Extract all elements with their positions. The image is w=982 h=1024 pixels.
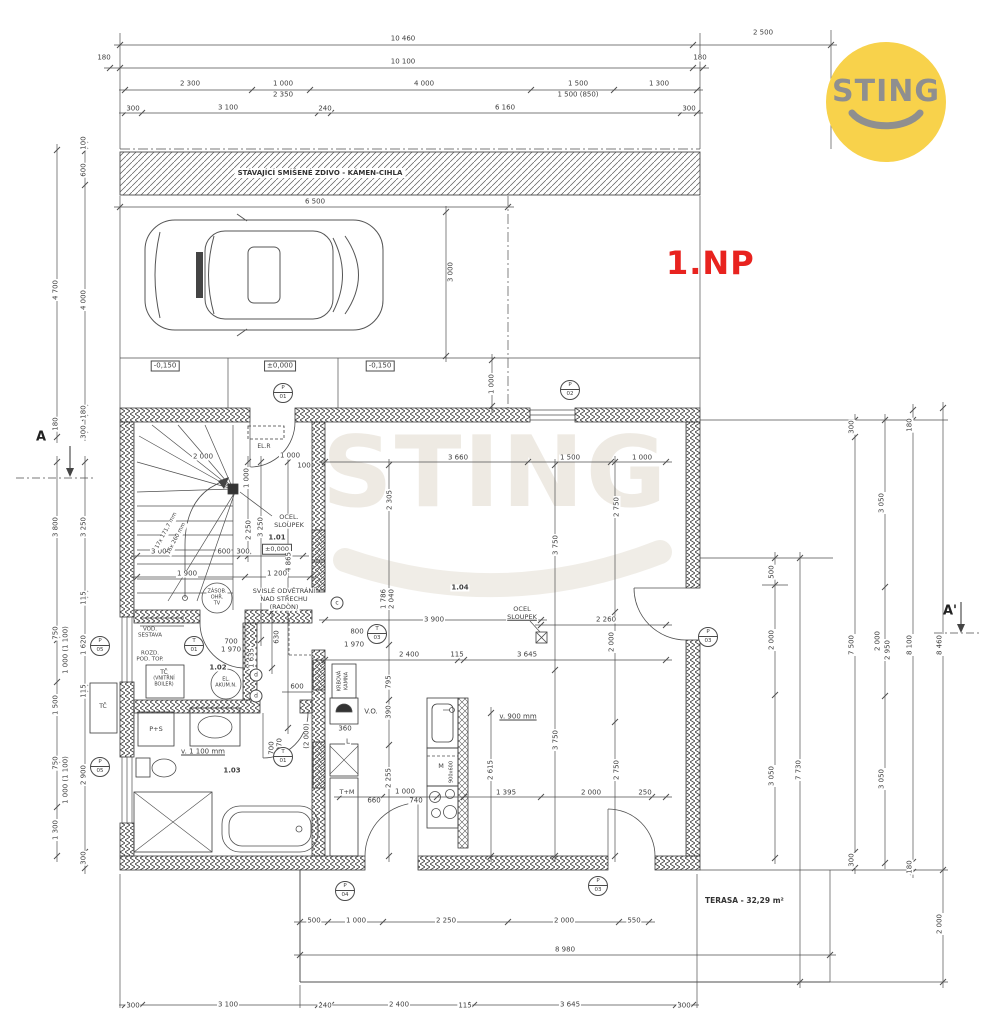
dim-text: 2 500 (752, 30, 774, 37)
dim-text: 3 250 (258, 516, 265, 538)
dim-text: 1.01 (267, 535, 286, 542)
dim-text: 1 970 (220, 647, 242, 654)
dim-text: 4 700 (53, 279, 60, 301)
dim-text: 100 (81, 135, 88, 150)
position-marker: P04 (335, 881, 355, 901)
dim-text: 3 100 (217, 1002, 239, 1009)
dim-text: L (345, 739, 351, 746)
dim-text: 630 (274, 629, 281, 644)
dim-text: 1 500 (53, 694, 60, 716)
dim-text: EL.R (256, 444, 271, 450)
dim-text: 2 615 (488, 759, 495, 781)
position-marker: P05 (90, 636, 110, 656)
dim-text: 1 000 (272, 81, 294, 88)
dim-text: 180 (692, 55, 707, 62)
dim-text: 300 (849, 852, 856, 867)
dim-text: P+S (148, 726, 164, 733)
dim-text: 180 (81, 404, 88, 419)
dim-text: V.O. (363, 709, 379, 716)
dim-text: 1.02 (208, 665, 227, 672)
dim-text: 500 (306, 918, 321, 925)
dim-text: 1 000 (345, 918, 367, 925)
dim-text: 6 160 (494, 105, 516, 112)
dim-text: 3 800 (53, 516, 60, 538)
dim-text: 1 000 (631, 455, 653, 462)
dim-text: 2 400 (388, 1002, 410, 1009)
dim-text: 240 (317, 106, 332, 113)
dim-text: 2 255 (386, 767, 393, 789)
dim-text: 1.04 (450, 585, 469, 592)
dim-text: 115 (449, 652, 464, 659)
dim-text: 1 500 (567, 81, 589, 88)
dim-text: 2 750 (614, 759, 621, 781)
dim-text: 1 635 (249, 647, 256, 669)
dim-text: 115 (457, 1003, 472, 1010)
vent-marker: c (331, 597, 344, 610)
dim-text: 2 000 (580, 790, 602, 797)
position-marker: T01 (273, 747, 293, 767)
dim-text: 300 (125, 106, 140, 113)
dim-text: 800 (349, 629, 364, 636)
dim-text: 300 (81, 424, 88, 439)
dim-text: 795 (386, 674, 393, 689)
dim-text: 2 300 (179, 81, 201, 88)
dim-text: 2 305 (387, 489, 394, 511)
dim-text: AKUM.N. (214, 684, 237, 689)
dim-text: 2 000 (875, 630, 882, 652)
dim-text: 700 (223, 639, 238, 646)
dim-text: 1 200 (266, 571, 288, 578)
dim-text: 2 000 (937, 913, 944, 935)
dim-text: 300 (681, 106, 696, 113)
dim-text: OCEL (512, 606, 531, 613)
dim-text: 900x600 (450, 760, 455, 784)
dim-text: 240 (317, 1003, 332, 1010)
position-marker: T01 (184, 636, 204, 656)
dim-text: 10 100 (390, 59, 417, 66)
vent-marker: d (250, 690, 263, 703)
section-marker-a-prime: A' (943, 604, 957, 619)
dim-text: 1 000 (279, 453, 301, 460)
dim-text: 2 250 (435, 918, 457, 925)
dim-text: 3 900 (423, 617, 445, 624)
dim-text: 390 (386, 704, 393, 719)
dim-text: 300 (235, 549, 250, 556)
existing-wall-label: STÁVAJÍCÍ SMÍŠENÉ ZDIVO - KÁMEN-CIHLA (235, 168, 406, 178)
dim-text: 750 (53, 625, 60, 640)
floor-title: 1.NP (666, 244, 755, 282)
terrace-area-label: TERASA - 32,29 m² (705, 896, 784, 905)
dim-text: POD. TOP. (135, 657, 164, 663)
dim-text: 100 (296, 463, 311, 470)
dim-text: 2 040 (389, 588, 396, 610)
dim-text: 2 000 (769, 629, 776, 651)
dim-text: 180 (53, 416, 60, 431)
dim-text: 300 (125, 1003, 140, 1010)
dim-text: 3 750 (553, 534, 560, 556)
dim-text: 360 (337, 726, 352, 733)
dim-text: 1 620 (81, 634, 88, 656)
dim-text: OCEL. (278, 514, 299, 521)
dim-text: 8 100 (907, 634, 914, 656)
dim-text: 2 000 (553, 918, 575, 925)
dim-text: 7 500 (849, 634, 856, 656)
dim-text: 1 300 (648, 81, 670, 88)
dim-text: M (437, 763, 445, 770)
dim-text: 3 050 (879, 492, 886, 514)
dim-text: KRBOVÁ (338, 670, 343, 692)
dim-text: 10 460 (390, 36, 417, 43)
position-marker: P03 (588, 876, 608, 896)
annotation-layer: 10 4602 50018010 1001802 3001 0002 3504 … (0, 0, 982, 1024)
dim-text: 1 000 (489, 373, 496, 395)
dim-text: SVISLÉ ODVĚTRÁNÍ (252, 588, 316, 595)
level-badge: ±0,000 (264, 361, 296, 372)
dim-text: 500 (769, 564, 776, 579)
dim-text: 1 000 (1 100) (63, 755, 70, 805)
dim-text: 8 980 (554, 947, 576, 954)
position-marker: P03 (698, 627, 718, 647)
dim-text: TV (213, 602, 221, 607)
dim-text: 300 (849, 419, 856, 434)
dim-text: 550 (626, 918, 641, 925)
dim-text: 6 500 (304, 199, 326, 206)
dim-text: NAD STŘECHU (259, 596, 308, 603)
section-marker-a: A (36, 430, 46, 445)
sting-logo-text: STING (826, 74, 946, 109)
dim-text: 1 786 (381, 588, 388, 610)
dim-text: TČ (159, 670, 169, 676)
dim-text: 250 (637, 790, 652, 797)
dim-text: (RADON) (269, 604, 300, 611)
dim-text: 1 000 (244, 467, 251, 489)
dim-text: v. 900 mm (498, 714, 537, 721)
floorplan-canvas: STING (0, 0, 982, 1024)
position-marker: P01 (273, 383, 293, 403)
dim-text: 2 350 (272, 92, 294, 99)
position-marker: P02 (560, 380, 580, 400)
dim-text: 1.03 (222, 768, 241, 775)
dim-text: 1 500 (850) (556, 92, 599, 99)
level-badge: -0,150 (366, 361, 395, 372)
dim-text: 2 900 (81, 764, 88, 786)
dim-text: 2 950 (885, 639, 892, 661)
dim-text: T+M (338, 789, 355, 796)
dim-text: 1 000 (1 100) (63, 625, 70, 675)
level-badge: -0,150 (151, 361, 180, 372)
dim-text: 8 460 (937, 634, 944, 656)
sting-logo-smile-icon (844, 109, 928, 135)
dim-text: 2 260 (595, 617, 617, 624)
dim-text: 3 645 (516, 652, 538, 659)
dim-text: 115 (81, 590, 88, 605)
dim-text: 1 970 (343, 642, 365, 649)
dim-text: 180 (907, 859, 914, 874)
dim-text: 1 395 (495, 790, 517, 797)
dim-text: 600 (289, 684, 304, 691)
dim-text: 2 000 (192, 454, 214, 461)
dim-text: 2 400 (398, 652, 420, 659)
dim-text: 3 645 (559, 1002, 581, 1009)
dim-text: 3 050 (769, 765, 776, 787)
dim-text: SESTAVA (137, 633, 163, 639)
dim-text: KAMNA (345, 671, 350, 691)
dim-text: SLOUPEK (273, 522, 305, 529)
dim-text: 1 500 (559, 455, 581, 462)
dim-text: 3 000 (448, 261, 455, 283)
dim-text: 3 100 (217, 105, 239, 112)
dim-text: 300 (81, 850, 88, 865)
dim-text: 2 750 (614, 496, 621, 518)
position-marker: T03 (367, 624, 387, 644)
dim-text: 1 300 (53, 819, 60, 841)
dim-text: 3 050 (879, 768, 886, 790)
dim-text: 2 250 (246, 519, 253, 541)
vent-marker: d (250, 669, 263, 682)
position-marker: P05 (90, 757, 110, 777)
dim-text: 180 (96, 55, 111, 62)
dim-text: 4 000 (81, 289, 88, 311)
dim-text: (2 000) (304, 722, 311, 750)
dim-text: 180 (907, 417, 914, 432)
dim-text: 660 (366, 798, 381, 805)
dim-text: 115 (81, 683, 88, 698)
dim-text: 3 750 (553, 729, 560, 751)
dim-text: 740 (408, 798, 423, 805)
dim-text: 4 000 (413, 81, 435, 88)
dim-text: 750 (53, 755, 60, 770)
dim-text: 600 (216, 549, 231, 556)
dim-text: 600 (81, 162, 88, 177)
dim-text: 1 000 (394, 789, 416, 796)
dim-text: TČ (98, 704, 108, 710)
sting-logo: STING (826, 42, 946, 162)
dim-text: v. 1 100 mm (180, 749, 226, 756)
dim-text: 300 (676, 1003, 691, 1010)
dim-text: 2 000 (609, 631, 616, 653)
dim-text: 3 250 (81, 516, 88, 538)
dim-text: 1 900 (176, 571, 198, 578)
dim-text: BOILER) (153, 684, 174, 689)
dim-text: SLOUPEK (506, 614, 538, 621)
dim-text: 3 660 (447, 455, 469, 462)
dim-text: 7 730 (796, 759, 803, 781)
